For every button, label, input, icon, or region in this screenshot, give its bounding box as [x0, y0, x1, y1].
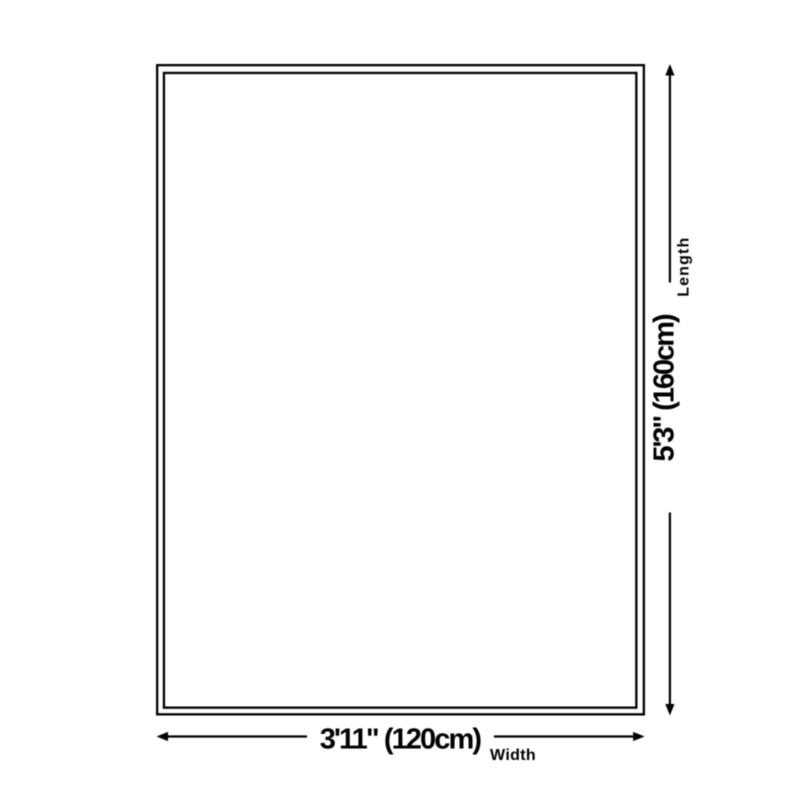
svg-text:Width: Width	[490, 747, 536, 764]
svg-text:3'11" (120cm): 3'11" (120cm)	[320, 724, 482, 756]
svg-text:5'3" (160cm): 5'3" (160cm)	[649, 313, 681, 461]
svg-text:Length: Length	[675, 238, 692, 297]
